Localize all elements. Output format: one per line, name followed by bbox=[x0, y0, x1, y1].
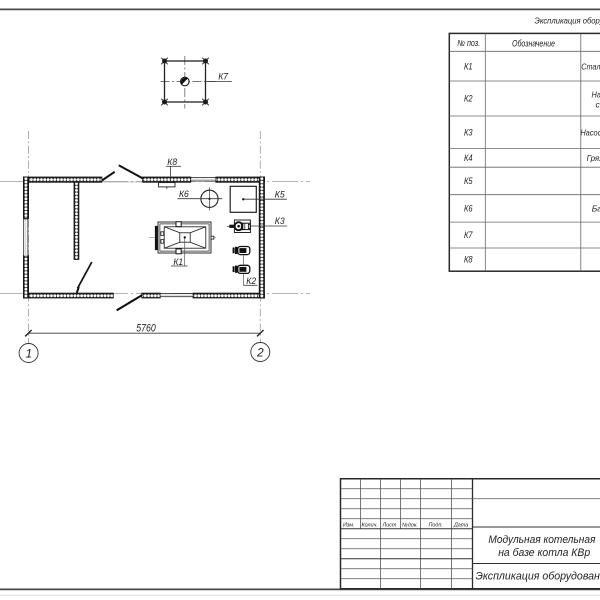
svg-text:на базе котла КВр: на базе котла КВр bbox=[498, 547, 590, 559]
svg-text:Дата: Дата bbox=[453, 523, 468, 529]
svg-text:К6: К6 bbox=[464, 204, 473, 214]
svg-text:с: с bbox=[596, 100, 600, 110]
svg-text:Грязевик: Грязевик bbox=[587, 153, 600, 163]
svg-text:Бак: Бак bbox=[592, 204, 600, 214]
svg-text:Изм.: Изм. bbox=[343, 523, 355, 529]
svg-text:К2: К2 bbox=[464, 94, 473, 104]
svg-text:Насос сетевой: Насос сетевой bbox=[592, 90, 600, 100]
svg-text:К7: К7 bbox=[464, 230, 473, 240]
svg-text:К3: К3 bbox=[275, 216, 286, 226]
svg-text:К4: К4 bbox=[464, 153, 473, 163]
svg-text:К8: К8 bbox=[167, 157, 178, 167]
svg-text:5760: 5760 bbox=[136, 322, 156, 334]
svg-text:Экспликация оборудования: Экспликация оборудования bbox=[476, 570, 600, 582]
svg-text:Насос подпиточный: Насос подпиточный bbox=[581, 127, 600, 137]
svg-text:2: 2 bbox=[256, 346, 264, 360]
svg-text:Стальной котел: Стальной котел bbox=[581, 61, 600, 71]
svg-text:Обозначение: Обозначение bbox=[512, 39, 555, 49]
svg-text:К7: К7 bbox=[218, 71, 229, 81]
svg-text:К5: К5 bbox=[464, 176, 473, 186]
svg-text:Экспликация оборудования: Экспликация оборудования bbox=[535, 16, 600, 26]
svg-text:Колич.: Колич. bbox=[362, 523, 378, 529]
svg-text:К3: К3 bbox=[464, 127, 473, 137]
svg-text:№док.: №док. bbox=[402, 523, 418, 529]
svg-text:№ поз.: № поз. bbox=[457, 38, 480, 48]
svg-text:К6: К6 bbox=[179, 189, 190, 199]
svg-text:К1: К1 bbox=[173, 257, 183, 267]
svg-text:К5: К5 bbox=[275, 189, 286, 199]
svg-text:Подп.: Подп. bbox=[429, 523, 443, 529]
svg-text:К1: К1 bbox=[464, 61, 473, 71]
svg-text:1: 1 bbox=[25, 347, 32, 361]
svg-text:Модульная котельная: Модульная котельная bbox=[488, 534, 595, 546]
svg-text:Лист: Лист bbox=[382, 523, 397, 529]
svg-text:К8: К8 bbox=[464, 255, 473, 265]
svg-text:К2: К2 bbox=[246, 276, 256, 286]
